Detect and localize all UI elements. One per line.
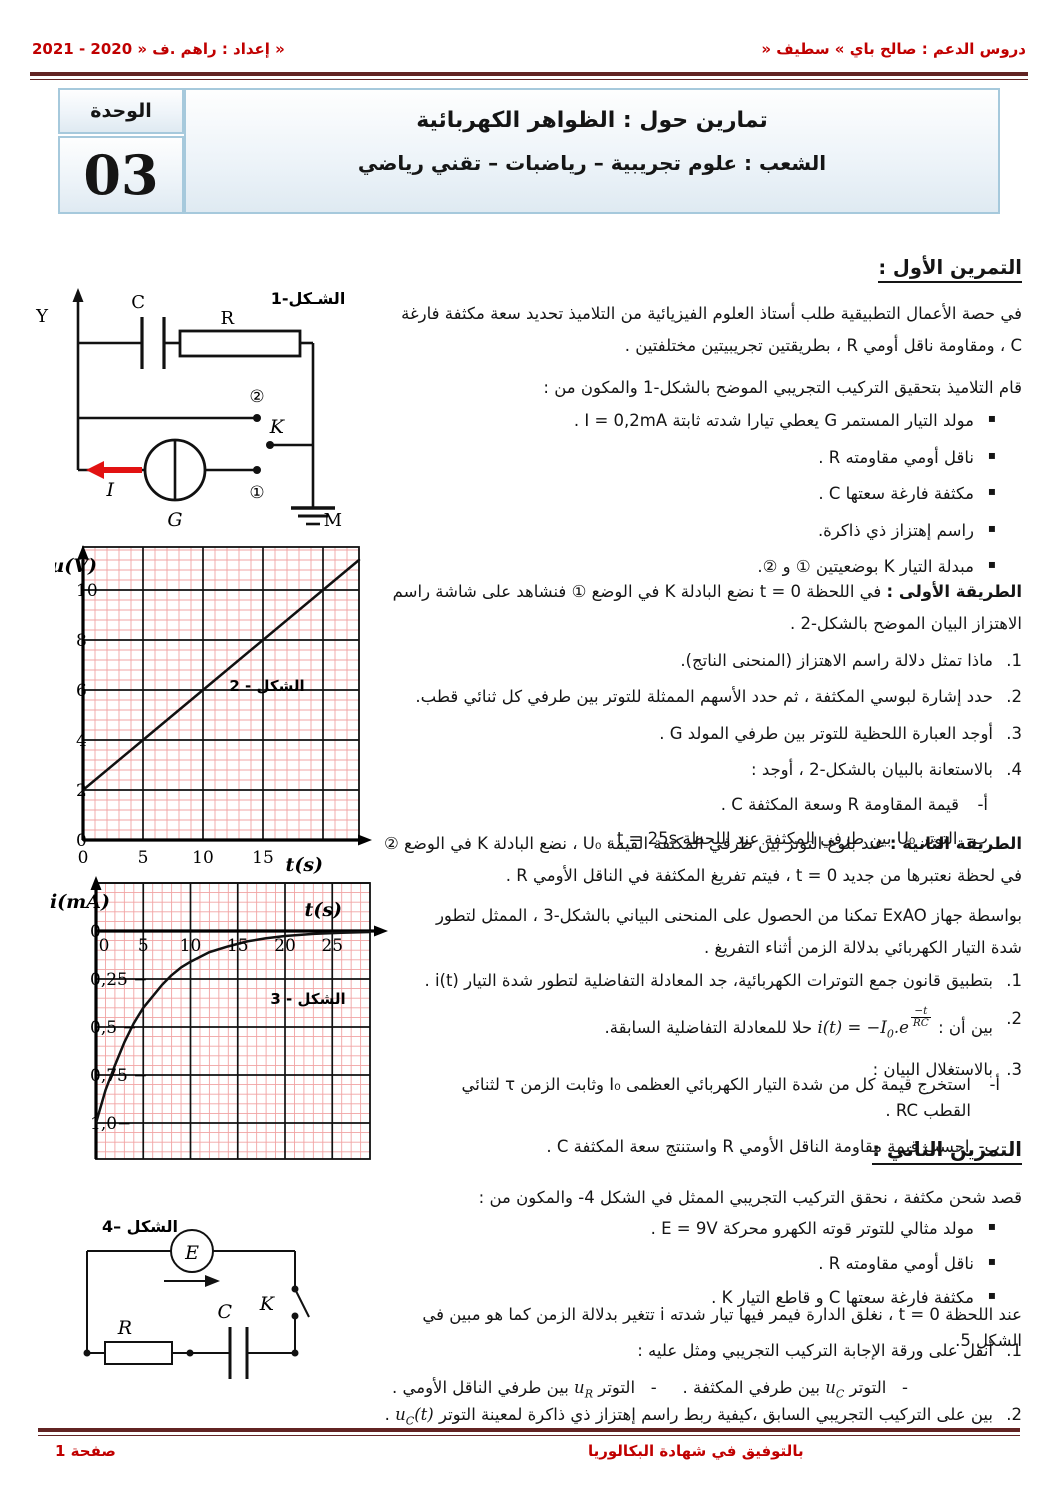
position-1-label: ① <box>249 483 264 503</box>
generator-label: E <box>184 1242 199 1264</box>
svg-text:u(V): u(V) <box>55 555 97 577</box>
sub-question-text: استخرج قيمة كل من شدة التيار الكهربائي ا… <box>420 1072 971 1125</box>
svg-text:2: 2 <box>76 781 87 801</box>
list-item: مكثفة فارغة سعتها C . <box>400 481 1000 507</box>
contact-dot <box>253 466 261 474</box>
capacitor-label: C <box>217 1301 232 1323</box>
question-number: 1. <box>1002 968 1022 994</box>
figure-1-circuit: الشـكل-1 Y C R M ② K ① G <box>30 280 378 538</box>
y-terminal-label: Y <box>35 306 49 327</box>
exercise1-questions: 1. ماذا تمثل دلالة راسم الاهتزاز (المنحن… <box>402 648 1022 852</box>
svg-text:8: 8 <box>76 631 87 651</box>
footer-divider <box>38 1428 1020 1436</box>
figure-1-label: الشـكل-1 <box>271 289 346 308</box>
worksheet-page: دروس الدعم : صالح باي » سطيف « إعداد : ر… <box>0 0 1058 1497</box>
question-number: 2. <box>1002 1402 1022 1430</box>
exercise2-q1a: - التوتر uC بين طرفي المكثفة . <box>683 1372 908 1405</box>
method1-label: الطريقة الأولى : <box>887 582 1022 601</box>
exercise1-intro1: في حصة الأعمال التطبيقية طلب أستاذ العلو… <box>392 298 1022 362</box>
svg-text:i(mA): i(mA) <box>50 891 110 913</box>
question-number: 3. <box>1002 1057 1022 1083</box>
exercise1-components: مولد التيار المستمر G يعطي تيارا شدته ثا… <box>400 408 1000 591</box>
svg-text:− 0,25: − 0,25 <box>90 970 148 990</box>
resistor-label: R <box>220 308 234 329</box>
question-text: بالاستعانة بالبيان بالشكل-2 ، أوجد : <box>751 757 993 783</box>
exercise1-intro2: قام التلاميذ بتحقيق التركيب التجريبي الم… <box>392 372 1022 404</box>
exercise1-heading-wrap: التمرين الأول : <box>878 256 1022 283</box>
list-item: راسم إهتزاز ذي ذاكرة. <box>400 518 1000 544</box>
svg-text:0: 0 <box>90 922 101 942</box>
svg-text:t(s): t(s) <box>286 854 323 876</box>
resistor-label: R <box>117 1317 132 1339</box>
figure-4-label: الشكل –4 <box>102 1217 178 1236</box>
question-number: 2. <box>1002 1006 1022 1043</box>
switch-label: K <box>269 416 286 438</box>
svg-text:0: 0 <box>78 848 89 868</box>
question-row: 2. بين أن : i(t) = −I0.e−tRC حلا للمعادل… <box>422 1006 1022 1043</box>
header-right: دروس الدعم : صالح باي » سطيف « <box>761 40 1026 58</box>
question-row: 4. بالاستعانة بالبيان بالشكل-2 ، أوجد : <box>402 757 1022 783</box>
question-row: 1. ماذا تمثل دلالة راسم الاهتزاز (المنحن… <box>402 648 1022 674</box>
exercise1-heading: التمرين الأول : <box>878 256 1022 283</box>
question-text: حدد إشارة لبوسي المكثفة ، ثم حدد الأسهم … <box>415 684 993 710</box>
svg-text:25: 25 <box>321 936 343 956</box>
question-text: أنقل على ورقة الإجابة التركيب التجريبي و… <box>637 1338 993 1364</box>
question-formula: بين أن : i(t) = −I0.e−tRC حلا للمعادلة ا… <box>605 1006 993 1043</box>
question-number: 2. <box>1002 684 1022 710</box>
figure-2-chart: 0510150246810t(s)u(V)الشكل - 2 <box>55 545 373 877</box>
title-box: تمارين حول : الظواهر الكهربائية الشعب : … <box>184 88 1000 214</box>
contact-dot <box>266 441 274 449</box>
header-left: إعداد : راهم .ف « 2020 - 2021 » <box>32 40 285 58</box>
current-label: I <box>105 479 114 501</box>
exercise2-intro: قصد شحن مكثفة ، نحقق التركيب التجريبي ال… <box>422 1182 1022 1214</box>
svg-text:الشكل - 2: الشكل - 2 <box>229 677 304 695</box>
svg-text:−1,0: −1,0 <box>90 1114 131 1134</box>
svg-text:15: 15 <box>252 848 274 868</box>
svg-text:الشكل - 3: الشكل - 3 <box>270 990 345 1008</box>
svg-text:10: 10 <box>76 581 98 601</box>
page-subtitle: الشعب : علوم تجريبية – رياضبات – تقني ري… <box>186 151 998 175</box>
arrow-up-icon <box>73 288 84 302</box>
exercise2-heading-wrap: التمرين الثاني : <box>872 1138 1022 1165</box>
question-number: 4. <box>1002 757 1022 783</box>
svg-text:5: 5 <box>138 848 149 868</box>
svg-text:t(s): t(s) <box>305 899 342 921</box>
unit-number-box: 03 <box>58 136 184 214</box>
sub-question-letter: أ- <box>980 1072 1000 1125</box>
svg-text:4: 4 <box>76 731 87 751</box>
method2-label: الطريقة الثانية : <box>890 834 1022 853</box>
svg-text:6: 6 <box>76 681 87 701</box>
question-row: 2. حدد إشارة لبوسي المكثفة ، ثم حدد الأس… <box>402 684 1022 710</box>
svg-text:− 0,75: − 0,75 <box>90 1066 148 1086</box>
svg-text:20: 20 <box>274 936 296 956</box>
footer-wish: بالتوفيق في شهادة البكالوريا <box>588 1442 804 1460</box>
list-item: ناقل أومي مقاومته R . <box>440 1251 1000 1277</box>
question-text: بتطبيق قانون جمع التوترات الكهربائية، جد… <box>424 968 993 994</box>
svg-text:10: 10 <box>180 936 202 956</box>
question-number: 3. <box>1002 721 1022 747</box>
generator-label: G <box>167 509 182 531</box>
unit-number: 03 <box>83 144 158 206</box>
resistor-box <box>180 331 300 356</box>
method2-paragraph: الطريقة الثانية : عند بلوغ التوتر بين طر… <box>362 828 1022 892</box>
sub-question-text: قيمة المقاومة R وسعة المكثفة C . <box>721 792 959 818</box>
exercise2-heading: التمرين الثاني : <box>872 1138 1022 1165</box>
sub-question-row: أ- استخرج قيمة كل من شدة التيار الكهربائ… <box>420 1072 1000 1125</box>
question-number: 1. <box>1002 1338 1022 1364</box>
exercise2-q1: 1. أنقل على ورقة الإجابة التركيب التجريب… <box>402 1338 1022 1364</box>
question-text: بين على التركيب التجريبي السابق ،كيفية ر… <box>385 1402 993 1430</box>
resistor-box <box>105 1342 172 1364</box>
figure-3-chart: 05101520250− 0,25− 0,5− 0,75−1,0t(s)i(mA… <box>50 874 415 1170</box>
method1-paragraph: الطريقة الأولى : في اللحظة t = 0 نضع الب… <box>362 576 1022 640</box>
switch-label: K <box>259 1293 276 1315</box>
question-row: 1. بتطبيق قانون جمع التوترات الكهربائية،… <box>422 968 1022 994</box>
sub-question-letter: أ- <box>968 792 988 818</box>
figure-4-circuit: الشكل –4 E K C R <box>52 1196 387 1396</box>
question-row: 3. أوجد العبارة اللحظية للتوتر بين طرفي … <box>402 721 1022 747</box>
page-title: تمارين حول : الظواهر الكهربائية <box>186 108 998 133</box>
list-item: مولد مثالي للتوتر قوته الكهرو محركة E = … <box>440 1216 1000 1242</box>
page-number: صفحة 1 <box>55 1442 116 1460</box>
list-item: مولد التيار المستمر G يعطي تيارا شدته ثا… <box>400 408 1000 434</box>
sub-question-row: أ- قيمة المقاومة R وسعة المكثفة C . <box>402 792 1022 818</box>
svg-text:15: 15 <box>227 936 249 956</box>
exao-paragraph: بواسطة جهاز ExAO تمكنا من الحصول على الم… <box>422 900 1022 964</box>
svg-text:0: 0 <box>76 831 87 851</box>
ground-label: M <box>324 510 342 531</box>
switch-lever <box>295 1289 309 1317</box>
contact-dot <box>253 414 261 422</box>
capacitor-label: C <box>131 292 145 313</box>
unit-label-box: الوحدة <box>58 88 184 134</box>
question-number: 1. <box>1002 648 1022 674</box>
exercise2-q1b: - التوتر uR بين طرفي الناقل الأومي . <box>392 1372 657 1405</box>
svg-text:5: 5 <box>138 936 149 956</box>
svg-text:− 0,5: − 0,5 <box>90 1018 137 1038</box>
svg-text:10: 10 <box>192 848 214 868</box>
position-2-label: ② <box>249 387 264 407</box>
unit-label: الوحدة <box>90 100 151 122</box>
question-text: ماذا تمثل دلالة راسم الاهتزاز (المنحنى ا… <box>680 648 993 674</box>
exercise2-q2: 2. بين على التركيب التجريبي السابق ،كيفي… <box>37 1402 1022 1430</box>
header-divider <box>30 72 1028 80</box>
question-text: أوجد العبارة اللحظية للتوتر بين طرفي الم… <box>659 721 993 747</box>
list-item: ناقل أومي مقاومته R . <box>400 445 1000 471</box>
